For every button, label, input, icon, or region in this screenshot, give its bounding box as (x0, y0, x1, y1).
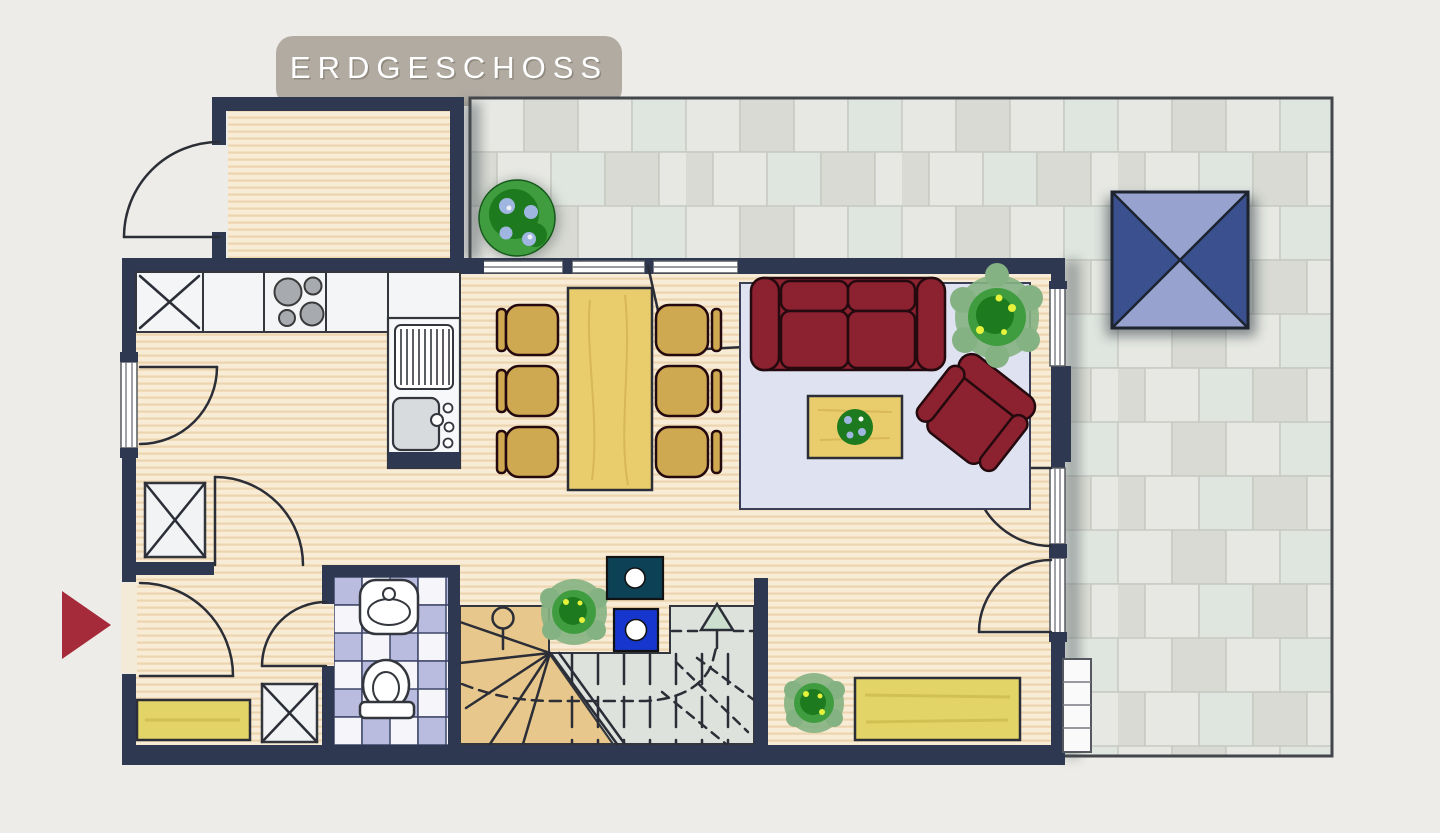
stair-level-marker-lower[interactable] (614, 609, 658, 651)
dining-chair (497, 366, 558, 416)
cabinet-box (262, 684, 317, 742)
plant-icon (784, 673, 845, 733)
sideboard (137, 700, 250, 740)
window (476, 259, 747, 274)
window (120, 352, 138, 458)
dining-table (568, 288, 652, 490)
living-room (740, 263, 1043, 509)
sink-unit (388, 318, 460, 468)
dining-area (497, 288, 721, 490)
bathroom-sink-icon (360, 580, 418, 634)
wall-shadow (464, 102, 480, 260)
wardrobe-box (145, 483, 205, 557)
sideboard (855, 678, 1020, 740)
dining-chair (497, 305, 558, 355)
stair-level-marker-upper[interactable] (607, 557, 663, 599)
entrance-arrow-icon[interactable] (62, 591, 111, 659)
dining-chair (497, 427, 558, 477)
sofa (751, 278, 945, 370)
coffee-table (808, 396, 902, 458)
dining-chair (656, 305, 721, 355)
vestibule-door (124, 142, 219, 237)
parasol-icon (1112, 192, 1248, 328)
dining-chair (656, 427, 721, 477)
plant-icon (540, 579, 608, 645)
table-plant-icon (837, 409, 873, 445)
floorplan-canvas: ERDGESCHOSS ERDGESCHOSS (0, 0, 1440, 833)
floor-title-tab[interactable]: ERDGESCHOSS ERDGESCHOSS (276, 36, 622, 106)
exterior-step (1063, 659, 1091, 752)
marker-dot-icon (626, 620, 647, 641)
floor-title: ERDGESCHOSS (290, 50, 608, 85)
marker-dot-icon (625, 568, 645, 588)
vestibule-floor (228, 110, 456, 260)
dining-chair (656, 366, 721, 416)
tree-icon (479, 180, 555, 256)
